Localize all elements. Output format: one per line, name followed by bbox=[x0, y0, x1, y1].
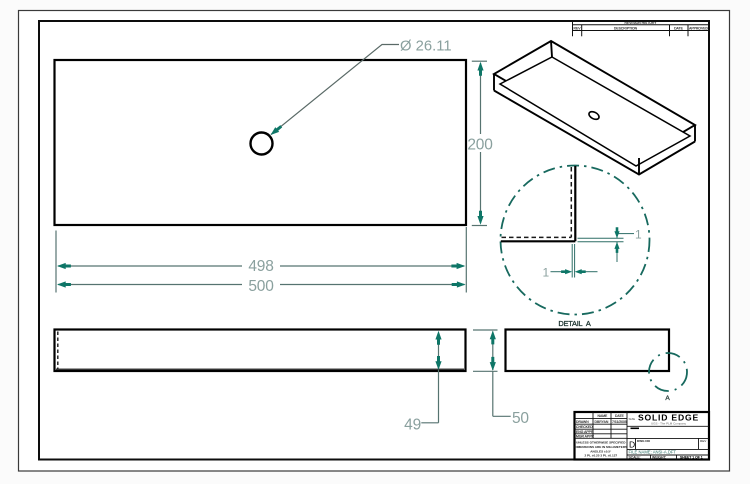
svg-text:200: 200 bbox=[467, 137, 493, 154]
svg-text:DRAWN: DRAWN bbox=[576, 420, 589, 424]
svg-text:2 PL ±0.25 3 PL ±0.127: 2 PL ±0.25 3 PL ±0.127 bbox=[584, 454, 617, 458]
svg-text:500: 500 bbox=[248, 278, 274, 295]
svg-text:REV: REV bbox=[700, 439, 707, 443]
svg-text:DATE: DATE bbox=[674, 26, 684, 30]
svg-text:NAME: NAME bbox=[598, 414, 609, 418]
svg-text:50: 50 bbox=[512, 410, 529, 427]
svg-text:CHECKED: CHECKED bbox=[576, 425, 593, 429]
svg-text:Ø 26.11: Ø 26.11 bbox=[400, 39, 452, 55]
svg-text:49: 49 bbox=[404, 417, 421, 434]
svg-text:7/11/2005: 7/11/2005 bbox=[612, 420, 627, 424]
svg-text:1: 1 bbox=[635, 228, 642, 242]
svg-text:SIZE: SIZE bbox=[629, 417, 636, 421]
svg-text:WEIGHT:: WEIGHT: bbox=[652, 456, 666, 460]
svg-text:REV: REV bbox=[574, 26, 582, 30]
svg-text:A: A bbox=[665, 395, 670, 402]
svg-text:ENG APPR: ENG APPR bbox=[576, 430, 594, 434]
svg-text:DWG NO: DWG NO bbox=[637, 439, 651, 443]
svg-text:DETAIL A: DETAIL A bbox=[558, 319, 591, 328]
svg-text:DESCRIPTION: DESCRIPTION bbox=[614, 26, 638, 30]
svg-text:DIMENSIONS ARE IN MILLIMETERS: DIMENSIONS ARE IN MILLIMETERS bbox=[574, 445, 627, 449]
svg-text:SHEET 1 OF 1: SHEET 1 OF 1 bbox=[680, 456, 703, 460]
svg-text:DBRYAN: DBRYAN bbox=[595, 420, 609, 424]
svg-text:FILE NAME: ANSI-A.DFT: FILE NAME: ANSI-A.DFT bbox=[629, 450, 677, 455]
svg-text:REVISION HISTORY: REVISION HISTORY bbox=[624, 21, 657, 25]
svg-text:1: 1 bbox=[543, 266, 550, 280]
svg-text:APPROVED: APPROVED bbox=[689, 26, 708, 30]
svg-text:SCALE:: SCALE: bbox=[629, 456, 641, 460]
svg-text:D: D bbox=[629, 440, 635, 450]
svg-text:498: 498 bbox=[248, 258, 273, 275]
svg-text:MGR APPR: MGR APPR bbox=[576, 434, 594, 438]
svg-text:UGS - The PLM Company: UGS - The PLM Company bbox=[651, 421, 686, 425]
svg-text:DATE: DATE bbox=[615, 414, 625, 418]
